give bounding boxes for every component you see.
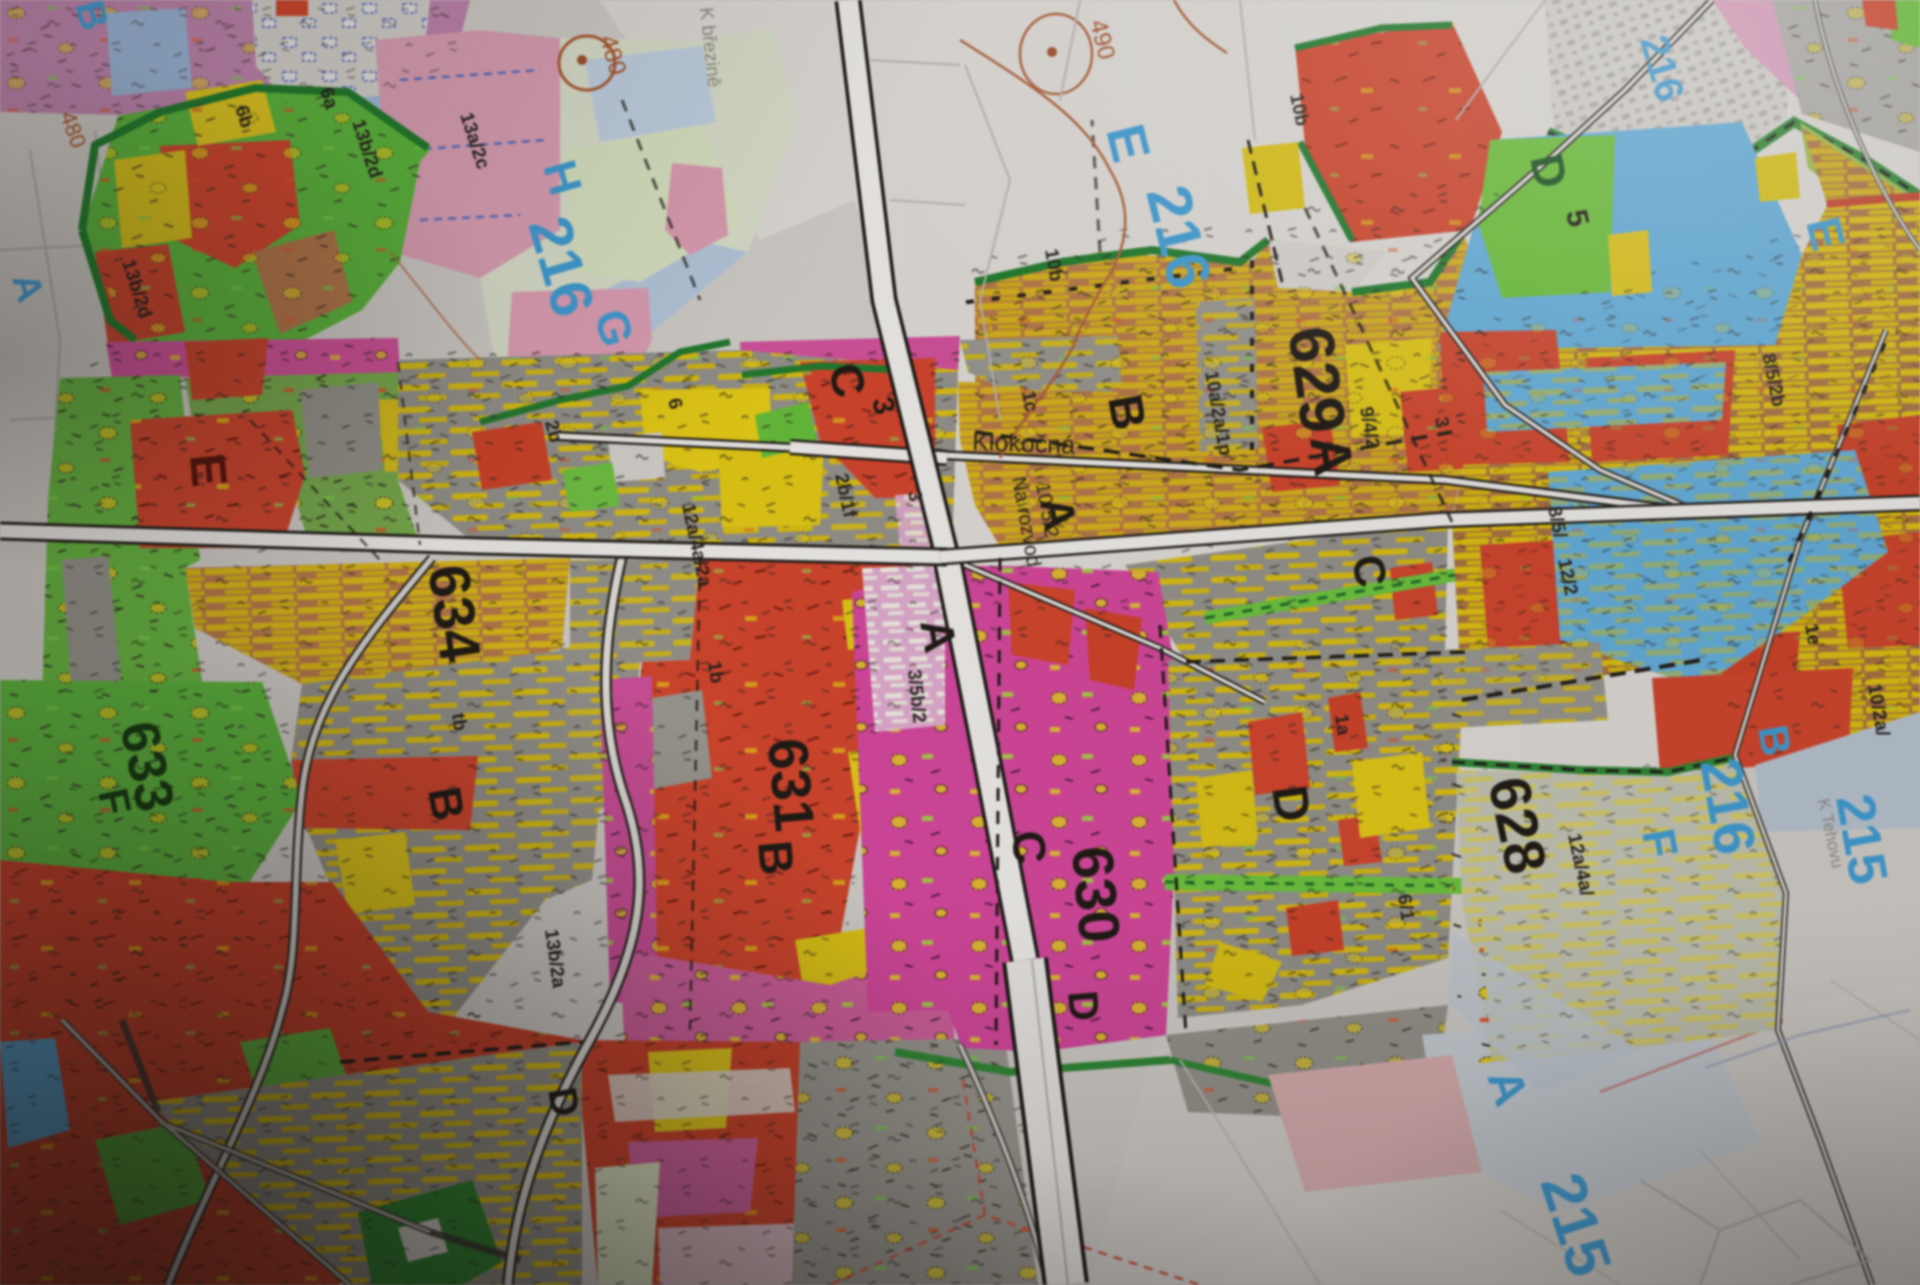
svg-text:C: C xyxy=(1002,828,1057,866)
svg-text:1e: 1e xyxy=(1800,622,1824,646)
svg-text:B: B xyxy=(747,838,803,877)
svg-text:E: E xyxy=(179,451,238,489)
svg-text:634: 634 xyxy=(415,561,493,666)
svg-text:631: 631 xyxy=(756,736,827,835)
svg-text:6/1: 6/1 xyxy=(1393,893,1418,923)
svg-text:629: 629 xyxy=(1274,322,1360,438)
svg-text:D: D xyxy=(1261,782,1321,826)
svg-text:Klokočná: Klokočná xyxy=(972,428,1076,460)
svg-text:tb: tb xyxy=(447,712,470,733)
svg-text:D: D xyxy=(1059,989,1108,1023)
svg-text:1b: 1b xyxy=(703,660,727,685)
svg-text:1c: 1c xyxy=(1017,389,1041,414)
svg-text:1a: 1a xyxy=(1330,713,1354,737)
svg-text:630: 630 xyxy=(1059,843,1132,945)
